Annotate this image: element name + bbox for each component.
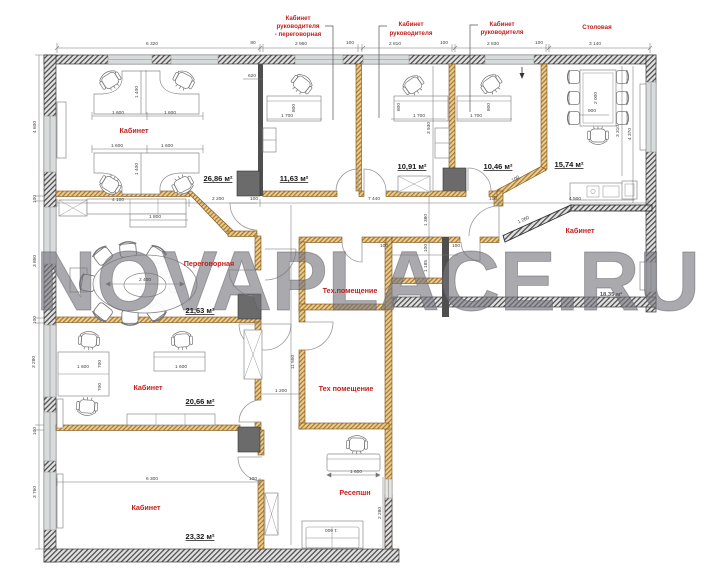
svg-text:2 810: 2 810 <box>389 41 401 47</box>
svg-text:Кабинет: Кабинет <box>489 21 514 28</box>
svg-text:1 600: 1 600 <box>350 469 362 475</box>
svg-text:2 400: 2 400 <box>139 277 151 283</box>
svg-text:2 200: 2 200 <box>212 196 224 202</box>
svg-text:10,91 м²: 10,91 м² <box>398 162 427 171</box>
svg-text:1 700: 1 700 <box>413 113 425 119</box>
svg-text:100: 100 <box>380 243 388 249</box>
svg-text:4 370: 4 370 <box>627 128 633 140</box>
svg-text:21,63 м²: 21,63 м² <box>186 306 215 315</box>
svg-text:- переговорная: - переговорная <box>275 31 322 38</box>
svg-text:1 600: 1 600 <box>175 364 187 370</box>
svg-text:100: 100 <box>32 195 38 203</box>
svg-text:1 600: 1 600 <box>325 527 337 533</box>
svg-text:10,46 м²: 10,46 м² <box>484 162 513 171</box>
svg-text:26,86 м²: 26,86 м² <box>204 174 233 183</box>
svg-text:6 320: 6 320 <box>146 41 158 47</box>
svg-text:3 850: 3 850 <box>32 255 38 267</box>
svg-text:Тех.помещение: Тех.помещение <box>323 286 378 295</box>
svg-text:100: 100 <box>346 40 354 46</box>
svg-text:1 400: 1 400 <box>134 86 140 98</box>
svg-text:80: 80 <box>250 40 256 46</box>
svg-text:100: 100 <box>249 476 257 482</box>
svg-text:3 760: 3 760 <box>32 486 38 498</box>
svg-text:1 200: 1 200 <box>275 388 287 394</box>
svg-text:2 280: 2 280 <box>377 507 383 519</box>
svg-text:800: 800 <box>396 103 402 111</box>
svg-text:1 600: 1 600 <box>111 143 123 149</box>
svg-text:100: 100 <box>440 40 448 46</box>
svg-text:100: 100 <box>452 243 460 249</box>
svg-text:Ресепшн: Ресепшн <box>339 488 370 497</box>
svg-text:100: 100 <box>32 316 38 324</box>
svg-text:Столовая: Столовая <box>582 24 612 31</box>
svg-text:NOVAPLACE.RU: NOVAPLACE.RU <box>36 234 700 328</box>
svg-text:Кабинет: Кабинет <box>398 21 423 28</box>
svg-text:Кабинет: Кабинет <box>131 503 161 512</box>
svg-text:4 600: 4 600 <box>32 121 38 133</box>
svg-text:1 700: 1 700 <box>470 113 482 119</box>
svg-text:Кабинет: Кабинет <box>285 15 310 22</box>
svg-text:800: 800 <box>291 104 297 112</box>
svg-text:800: 800 <box>486 103 492 111</box>
svg-text:2 960: 2 960 <box>295 41 307 47</box>
svg-text:1 400: 1 400 <box>134 163 140 175</box>
svg-text:руководителя: руководителя <box>480 29 523 36</box>
svg-text:3 310: 3 310 <box>615 125 621 137</box>
svg-text:6 300: 6 300 <box>146 476 158 482</box>
svg-text:4 500: 4 500 <box>569 196 581 202</box>
svg-text:2 830: 2 830 <box>487 41 499 47</box>
svg-text:100: 100 <box>32 427 38 435</box>
svg-text:1 380: 1 380 <box>423 214 429 226</box>
svg-text:700: 700 <box>97 383 103 391</box>
svg-text:1 600: 1 600 <box>112 110 124 116</box>
svg-text:15,74 м²: 15,74 м² <box>555 160 584 169</box>
svg-text:Кабинет: Кабинет <box>119 126 149 135</box>
svg-text:18,35 м²: 18,35 м² <box>600 291 622 298</box>
svg-text:700: 700 <box>97 360 103 368</box>
svg-text:руководителя: руководителя <box>389 30 432 37</box>
svg-text:руководителя: руководителя <box>276 23 319 30</box>
svg-text:620: 620 <box>248 73 256 79</box>
svg-text:11,63 м²: 11,63 м² <box>280 174 309 183</box>
svg-text:1 185: 1 185 <box>423 260 429 272</box>
svg-text:4 100: 4 100 <box>112 197 124 203</box>
svg-text:23,32 м²: 23,32 м² <box>186 532 215 541</box>
svg-text:100: 100 <box>250 196 258 202</box>
svg-text:100: 100 <box>489 196 497 202</box>
svg-text:1 600: 1 600 <box>164 110 176 116</box>
svg-text:3 280: 3 280 <box>31 356 37 368</box>
svg-text:1 600: 1 600 <box>161 143 173 149</box>
svg-text:Переговорная: Переговорная <box>184 259 234 268</box>
svg-text:1 800: 1 800 <box>149 214 161 220</box>
svg-text:100: 100 <box>423 244 429 252</box>
svg-text:900: 900 <box>588 108 596 114</box>
svg-text:100: 100 <box>535 40 543 46</box>
svg-text:Кабинет: Кабинет <box>565 226 595 235</box>
svg-text:3 930: 3 930 <box>426 122 432 134</box>
svg-text:11 550: 11 550 <box>290 355 296 370</box>
svg-text:1 700: 1 700 <box>281 113 293 119</box>
svg-text:Кабинет: Кабинет <box>133 383 163 392</box>
svg-text:3 140: 3 140 <box>589 41 601 47</box>
svg-text:2 000: 2 000 <box>593 92 599 104</box>
svg-text:Тех помещение: Тех помещение <box>319 384 374 393</box>
svg-text:20,66 м²: 20,66 м² <box>186 397 215 406</box>
svg-text:1 600: 1 600 <box>77 364 89 370</box>
svg-text:7 440: 7 440 <box>368 196 380 202</box>
